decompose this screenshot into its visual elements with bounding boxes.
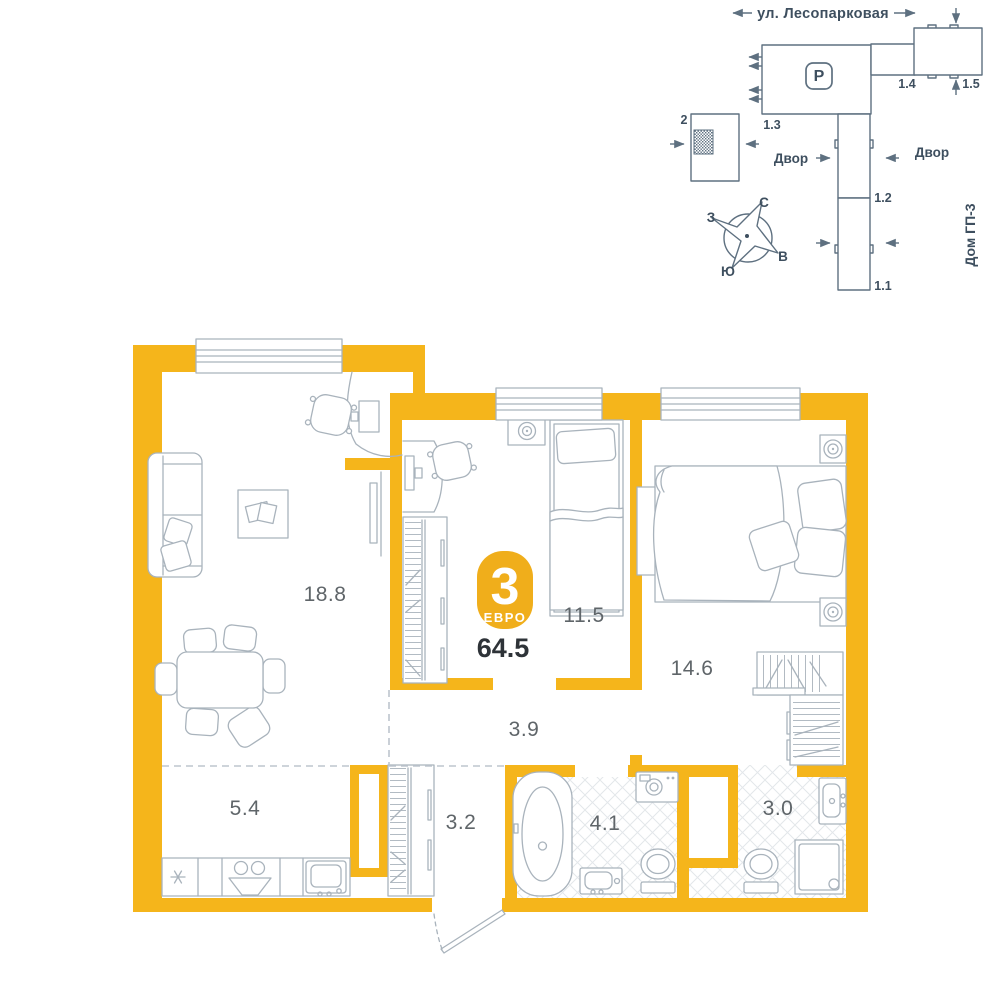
kitchen-counter — [162, 858, 350, 896]
dining-table — [177, 652, 263, 708]
street-label: ул. Лесопарковая — [757, 6, 889, 22]
nightstand-lamp — [820, 435, 846, 463]
section-1-2-label: 1.2 — [874, 191, 891, 205]
room-label-closet: 3.2 — [446, 811, 477, 834]
total-area-label: 64.5 — [477, 633, 530, 663]
yard-right-label: Двор — [915, 145, 949, 160]
washing-machine — [636, 772, 678, 802]
room-label-hallway: 3.9 — [509, 718, 540, 741]
section-1-3-label: 1.3 — [763, 118, 780, 132]
office-chair — [304, 392, 358, 439]
compass: С З Ю В — [707, 195, 788, 279]
bed-single — [550, 420, 623, 616]
compass-east-label: В — [778, 249, 788, 264]
room-label-wc: 3.0 — [763, 797, 794, 820]
section-1-1-label: 1.1 — [874, 279, 891, 293]
room-label-bedroom-small: 11.5 — [563, 604, 604, 627]
room-label-kitchen: 5.4 — [230, 797, 261, 820]
site-map: ул. Лесопарковая P 1.3 1.4 1.5 — [670, 6, 982, 293]
house-name-label: Дом ГП-3 — [962, 203, 978, 266]
room-label-bathroom: 4.1 — [590, 812, 621, 835]
nightstand-lamp — [508, 418, 545, 445]
bedroom-master-furniture — [637, 435, 847, 765]
window — [661, 388, 800, 420]
bed-double — [654, 466, 848, 602]
section-1-5-label: 1.5 — [962, 77, 979, 91]
section-1-4-building — [871, 44, 915, 75]
section-1-4-label: 1.4 — [898, 77, 915, 91]
closet-wardrobe — [388, 765, 434, 896]
sink — [580, 868, 622, 894]
floor-plan: 18.8 11.5 14.6 3.9 5.4 3.2 4.1 3.0 3 ЕВР… — [133, 339, 868, 953]
toilet — [744, 849, 778, 893]
window — [496, 388, 602, 420]
dining-set — [155, 624, 285, 750]
nightstand-lamp — [820, 598, 846, 626]
office-chair — [426, 439, 478, 484]
tower-building — [835, 114, 873, 290]
section-1-5-building — [914, 28, 982, 75]
sofa — [148, 453, 202, 577]
apartment-badge: 3 ЕВРО — [477, 551, 533, 629]
sink — [819, 778, 846, 824]
bathtub — [513, 772, 572, 896]
compass-south-label: Ю — [721, 264, 735, 279]
badge-type-label: ЕВРО — [484, 610, 527, 625]
section-2-label: 2 — [681, 113, 688, 127]
room-label-living: 18.8 — [304, 583, 347, 606]
compass-west-label: З — [707, 210, 715, 225]
window — [196, 339, 342, 373]
tv-unit — [370, 472, 381, 556]
parking-icon: P — [814, 68, 825, 85]
room-label-bedroom-master: 14.6 — [671, 657, 714, 680]
wardrobe — [403, 517, 447, 683]
coffee-table — [238, 490, 288, 538]
toilet — [641, 849, 675, 893]
shower — [795, 840, 843, 894]
yard-left-label: Двор — [774, 151, 808, 166]
compass-north-label: С — [759, 195, 769, 210]
windows — [196, 339, 800, 420]
wardrobe — [753, 652, 843, 765]
floorplan-page: ул. Лесопарковая P 1.3 1.4 1.5 — [0, 0, 1000, 1000]
floorplan-canvas: ул. Лесопарковая P 1.3 1.4 1.5 — [0, 0, 1000, 1000]
entrance-arrows — [749, 57, 762, 99]
badge-rooms-count: 3 — [491, 558, 520, 616]
entry-door — [434, 910, 505, 953]
parking-building: P — [762, 45, 871, 114]
